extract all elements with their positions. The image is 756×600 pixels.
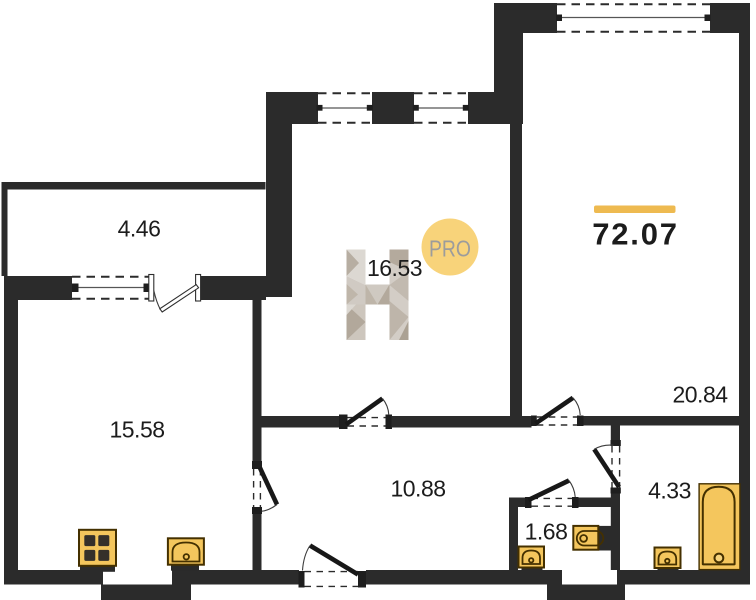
svg-text:72.07: 72.07 xyxy=(592,217,679,252)
svg-text:4.33: 4.33 xyxy=(648,477,691,503)
svg-text:15.58: 15.58 xyxy=(109,417,164,443)
svg-text:16.53: 16.53 xyxy=(367,255,422,281)
svg-text:10.88: 10.88 xyxy=(390,475,445,501)
svg-text:PRO: PRO xyxy=(429,236,471,262)
svg-text:20.84: 20.84 xyxy=(672,382,728,408)
svg-text:4.46: 4.46 xyxy=(118,216,161,242)
svg-text:1.68: 1.68 xyxy=(525,519,568,545)
